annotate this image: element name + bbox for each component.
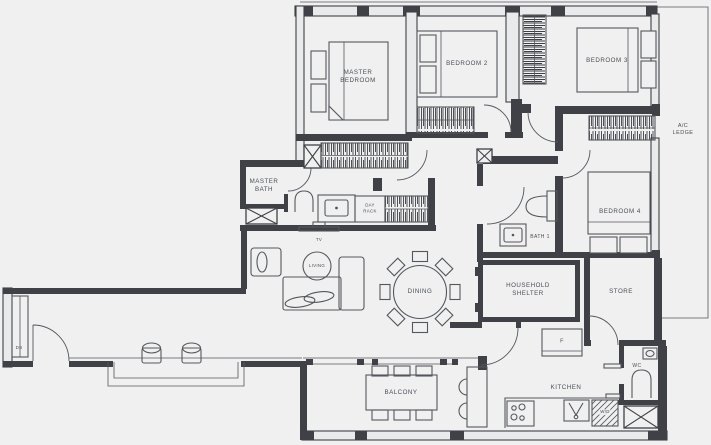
household-shelter-walls bbox=[475, 263, 578, 320]
armchair bbox=[251, 248, 281, 276]
bedside-table bbox=[311, 84, 326, 112]
balcony-chair bbox=[416, 410, 432, 420]
bath1-fixtures bbox=[500, 191, 557, 246]
bedroom2-bed bbox=[417, 31, 497, 97]
bedroom2-wardrobe bbox=[417, 107, 474, 133]
bedroom2-door-arc bbox=[484, 105, 511, 132]
bar-stool bbox=[459, 379, 467, 395]
entry-door-arc bbox=[33, 325, 69, 361]
wc-door-leaf bbox=[604, 364, 621, 368]
living-label-circle bbox=[303, 252, 331, 280]
living-furniture bbox=[251, 222, 364, 310]
bath1-door-arc bbox=[487, 187, 524, 224]
bar-counter bbox=[467, 367, 487, 427]
washer-dryer bbox=[592, 400, 618, 426]
pillow bbox=[420, 66, 436, 93]
master-bath-fixtures bbox=[295, 191, 385, 222]
day-rack-cabinet bbox=[355, 196, 385, 222]
db-closet bbox=[12, 296, 28, 357]
shaft-box bbox=[304, 145, 321, 168]
bedroom3-wardrobe bbox=[523, 15, 546, 84]
vanity bbox=[318, 195, 355, 222]
floorplan: MASTER BEDROOM BEDROOM 2 BEDROOM 3 BEDRO… bbox=[0, 0, 711, 445]
dining-chair bbox=[387, 308, 405, 326]
stool bbox=[182, 343, 201, 363]
dining-set bbox=[380, 252, 460, 333]
bedroom3-door-arc bbox=[528, 112, 558, 142]
wc-sink bbox=[643, 348, 657, 359]
dining-chair bbox=[380, 285, 390, 300]
master-bed bbox=[311, 42, 388, 120]
bedside-table bbox=[311, 51, 326, 79]
pillow bbox=[620, 237, 647, 253]
wc-door-leaf bbox=[606, 394, 620, 398]
floorplan-svg bbox=[0, 0, 711, 445]
shaft-box bbox=[624, 406, 658, 428]
bedroom3-bed bbox=[577, 28, 656, 92]
bay-window bbox=[108, 362, 244, 386]
pillow bbox=[590, 237, 617, 253]
entry-corridor bbox=[12, 296, 201, 363]
bedside-table bbox=[641, 61, 656, 88]
bedside-table bbox=[641, 31, 656, 58]
wc-fixtures bbox=[632, 348, 657, 398]
toilet bbox=[526, 191, 557, 221]
dining-chair bbox=[413, 323, 428, 333]
master-wardrobe bbox=[321, 143, 408, 168]
fridge bbox=[542, 329, 582, 356]
pillow bbox=[420, 35, 436, 62]
dining-chair bbox=[450, 285, 460, 300]
sink bbox=[500, 224, 526, 246]
dining-chair bbox=[387, 258, 405, 276]
dining-chair bbox=[413, 252, 428, 262]
kitchen-sink bbox=[564, 400, 589, 421]
dining-table bbox=[394, 266, 447, 319]
kitchen-fixtures bbox=[505, 329, 618, 428]
hob bbox=[507, 401, 534, 426]
shaft-box bbox=[477, 149, 492, 163]
toilet bbox=[295, 191, 313, 212]
bar-stool bbox=[459, 403, 467, 419]
bedroom4-bed bbox=[588, 172, 650, 253]
bedroom4-wardrobe bbox=[589, 116, 655, 140]
wc-toilet bbox=[632, 370, 651, 398]
balcony-furniture bbox=[366, 366, 487, 427]
balcony-table bbox=[366, 375, 437, 410]
master-bath-door-arc bbox=[288, 168, 311, 191]
balcony-chair bbox=[394, 410, 410, 420]
store-door-arc bbox=[589, 316, 618, 345]
bedroom4-door-arc bbox=[562, 150, 590, 178]
sofa bbox=[283, 257, 364, 310]
hall-wardrobe bbox=[385, 196, 428, 222]
balcony-chair bbox=[372, 410, 388, 420]
shaft-box bbox=[246, 208, 277, 224]
stool bbox=[142, 343, 161, 363]
dining-chair bbox=[435, 258, 453, 276]
